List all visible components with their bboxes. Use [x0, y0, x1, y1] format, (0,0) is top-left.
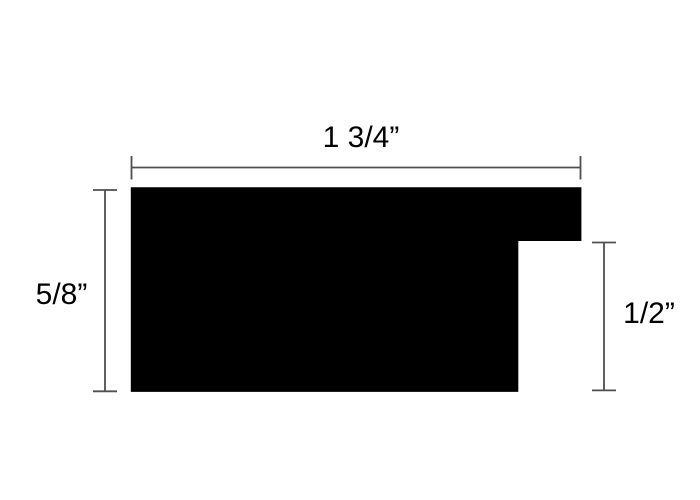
svg-text:1/2”: 1/2”: [623, 297, 675, 330]
svg-text:1 3/4”: 1 3/4”: [323, 121, 400, 154]
svg-text:5/8”: 5/8”: [36, 278, 88, 311]
